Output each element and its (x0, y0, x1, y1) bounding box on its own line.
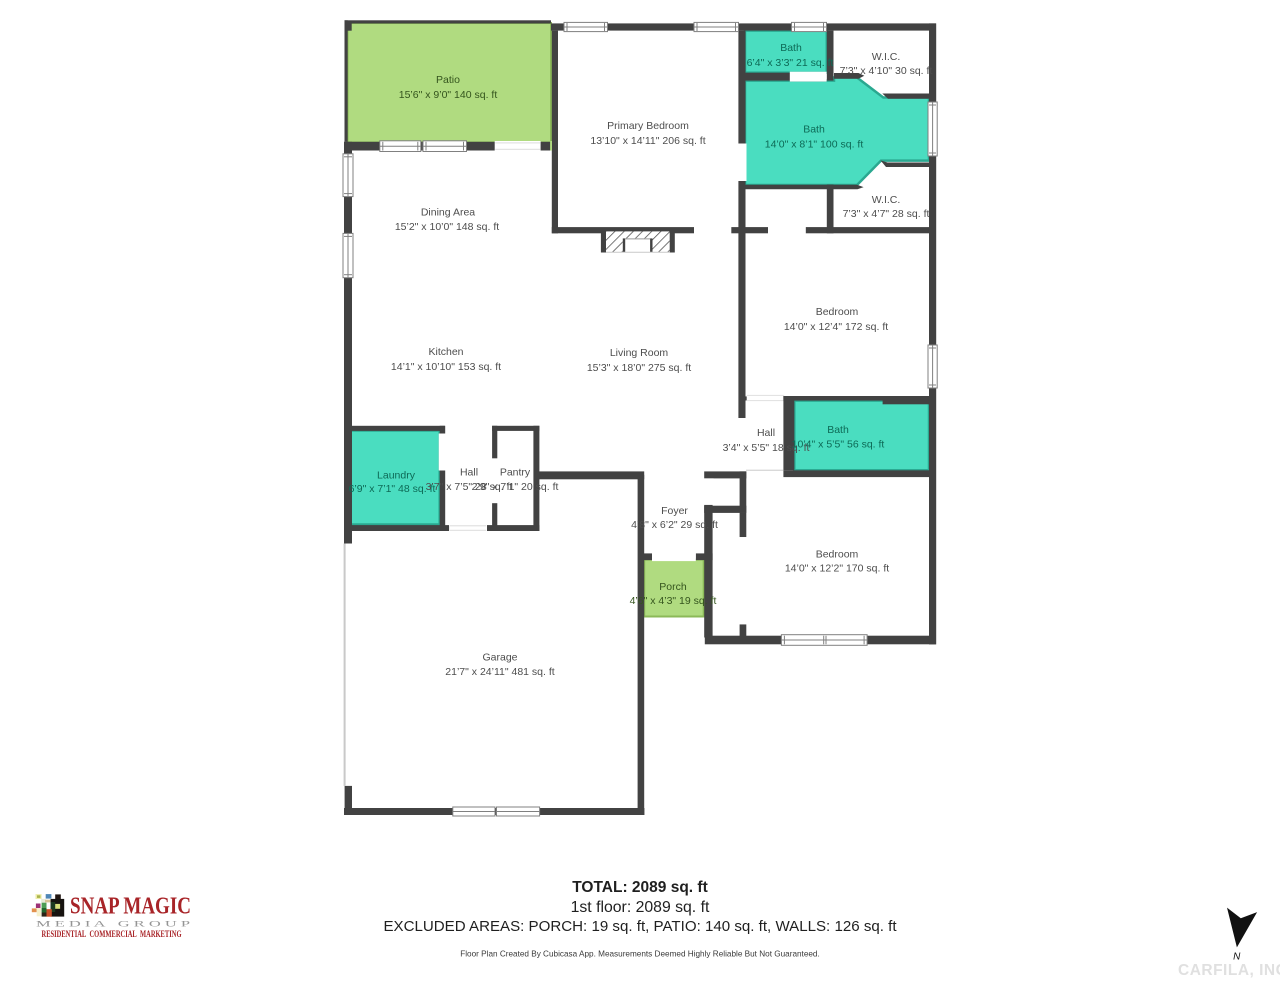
svg-text:7’3" x 4’10" 30 sq. ft: 7’3" x 4’10" 30 sq. ft (840, 65, 933, 77)
svg-text:2’9" x 7’1" 20 sq. ft: 2’9" x 7’1" 20 sq. ft (472, 481, 559, 493)
svg-text:7’3" x 4’7" 28 sq. ft: 7’3" x 4’7" 28 sq. ft (843, 208, 930, 220)
svg-text:Primary Bedroom: Primary Bedroom (607, 120, 689, 132)
svg-text:Pantry: Pantry (500, 467, 531, 479)
svg-text:N: N (1233, 952, 1241, 963)
svg-text:CARFILA, INC: CARFILA, INC (1178, 962, 1280, 979)
svg-text:W.I.C.: W.I.C. (872, 194, 901, 206)
svg-text:15’2" x 10’0" 148 sq. ft: 15’2" x 10’0" 148 sq. ft (395, 221, 499, 233)
svg-text:14’0" x 12’4" 172 sq. ft: 14’0" x 12’4" 172 sq. ft (784, 321, 888, 333)
svg-text:15’3" x 18’0" 275 sq. ft: 15’3" x 18’0" 275 sq. ft (587, 362, 691, 374)
svg-text:Garage: Garage (482, 652, 517, 664)
svg-text:M E D I A G R O U P: M E D I A G R O U P (36, 920, 191, 929)
svg-text:14’0" x 8’1" 100 sq. ft: 14’0" x 8’1" 100 sq. ft (765, 139, 864, 151)
svg-text:Floor Plan Created By Cubicasa: Floor Plan Created By Cubicasa App. Meas… (460, 950, 820, 959)
svg-text:1st floor: 2089 sq. ft: 1st floor: 2089 sq. ft (571, 899, 710, 916)
svg-text:6’4" x 3’3" 21 sq. ft: 6’4" x 3’3" 21 sq. ft (747, 57, 834, 69)
svg-text:15’6" x 9’0" 140 sq. ft: 15’6" x 9’0" 140 sq. ft (399, 89, 498, 101)
svg-text:Bedroom: Bedroom (816, 306, 859, 318)
svg-text:Bath: Bath (803, 124, 825, 136)
svg-text:Hall: Hall (460, 467, 478, 479)
svg-text:6’9" x 7’1" 48 sq. ft: 6’9" x 7’1" 48 sq. ft (349, 483, 436, 495)
svg-text:RESIDENTIAL COMMERCIAL MARKE: RESIDENTIAL COMMERCIAL MARKETING (42, 929, 182, 939)
svg-text:Dining Area: Dining Area (421, 207, 475, 219)
svg-text:Bath: Bath (780, 42, 802, 54)
svg-text:13’10" x 14’11" 206 sq. ft: 13’10" x 14’11" 206 sq. ft (590, 135, 705, 147)
svg-text:Kitchen: Kitchen (428, 346, 463, 358)
svg-text:21’7" x 24’11" 481 sq. ft: 21’7" x 24’11" 481 sq. ft (445, 666, 554, 678)
svg-text:W.I.C.: W.I.C. (872, 51, 901, 63)
svg-text:Bath: Bath (827, 424, 849, 436)
svg-text:Foyer: Foyer (661, 505, 688, 517)
svg-text:Living Room: Living Room (610, 347, 669, 359)
svg-text:Porch: Porch (659, 581, 687, 593)
svg-text:Hall: Hall (757, 427, 775, 439)
svg-text:Laundry: Laundry (377, 470, 416, 482)
svg-text:Patio: Patio (436, 74, 460, 86)
svg-text:10’4" x 5’5" 56 sq. ft: 10’4" x 5’5" 56 sq. ft (792, 439, 885, 451)
svg-text:SNAP MAGIC: SNAP MAGIC (70, 893, 191, 920)
svg-text:Bedroom: Bedroom (816, 549, 859, 561)
svg-text:14’1" x 10’10" 153 sq. ft: 14’1" x 10’10" 153 sq. ft (391, 361, 501, 373)
svg-text:4’8" x 6’2" 29 sq. ft: 4’8" x 6’2" 29 sq. ft (631, 519, 718, 531)
svg-text:TOTAL: 2089 sq. ft: TOTAL: 2089 sq. ft (572, 879, 708, 896)
svg-text:14’0" x 12’2" 170 sq. ft: 14’0" x 12’2" 170 sq. ft (785, 563, 889, 575)
svg-text:4’6" x 4’3" 19 sq. ft: 4’6" x 4’3" 19 sq. ft (630, 595, 717, 607)
svg-text:EXCLUDED AREAS: PORCH: 19 sq.: EXCLUDED AREAS: PORCH: 19 sq. ft, PATIO:… (383, 918, 897, 935)
